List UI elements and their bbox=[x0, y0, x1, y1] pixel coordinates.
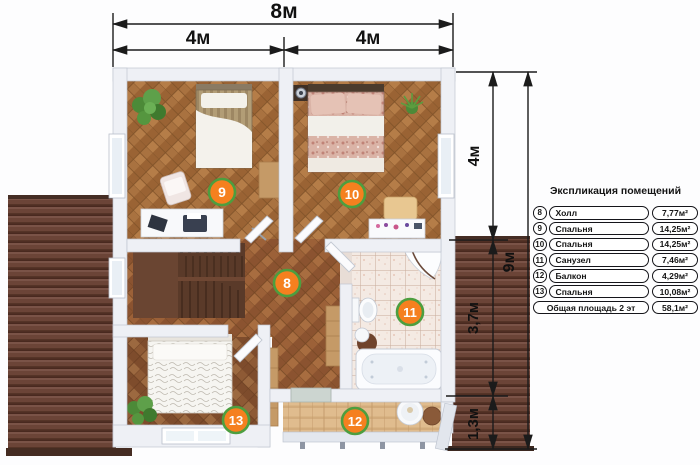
legend-room-name: Спальня bbox=[549, 222, 650, 236]
room-legend: Экспликация помещений 8 Холл 7,77м² 9 Сп… bbox=[533, 185, 698, 317]
svg-text:8: 8 bbox=[283, 275, 291, 291]
legend-title: Экспликация помещений bbox=[533, 185, 698, 197]
legend-row: 8 Холл 7,77м² bbox=[533, 206, 698, 220]
dim-right-bottom: 1,3м bbox=[465, 408, 482, 440]
legend-total-label: Общая площадь 2 эт bbox=[533, 301, 649, 315]
roof-right bbox=[446, 236, 534, 451]
legend-room-number: 10 bbox=[533, 238, 547, 252]
legend-room-number: 12 bbox=[533, 269, 547, 283]
dim-top-total: 8м bbox=[270, 0, 297, 23]
badge-room-10: 10 bbox=[339, 181, 365, 207]
badge-room-13: 13 bbox=[223, 407, 249, 433]
double-bed-icon bbox=[308, 84, 384, 172]
legend-row: 10 Спальня 14,25м² bbox=[533, 238, 698, 252]
legend-room-name: Спальня bbox=[549, 285, 650, 299]
legend-row: 9 Спальня 14,25м² bbox=[533, 222, 698, 236]
legend-room-name: Балкон bbox=[549, 269, 650, 283]
dim-top-right: 4м bbox=[356, 28, 381, 49]
floor-plan-page: 9 10 8 11 12 13 bbox=[0, 0, 700, 465]
legend-room-name: Санузел bbox=[549, 253, 650, 267]
bed-13-icon bbox=[148, 334, 232, 413]
balcony-chair-icon bbox=[423, 407, 441, 425]
legend-room-area: 4,29м² bbox=[652, 269, 698, 283]
bidet-icon bbox=[355, 328, 369, 342]
staircase bbox=[133, 243, 245, 318]
legend-room-name: Спальня bbox=[549, 238, 650, 252]
window-bedroom9 bbox=[109, 134, 125, 198]
svg-text:13: 13 bbox=[229, 413, 243, 428]
legend-row: 13 Спальня 10,08м² bbox=[533, 285, 698, 299]
legend-room-area: 10,08м² bbox=[652, 285, 698, 299]
legend-room-number: 8 bbox=[533, 206, 547, 220]
dim-right-top: 4м bbox=[466, 146, 483, 167]
legend-room-area: 7,77м² bbox=[652, 206, 698, 220]
balcony-door-sill bbox=[291, 388, 331, 402]
dim-right-total: 9м bbox=[501, 252, 518, 273]
legend-room-area: 14,25м² bbox=[652, 238, 698, 252]
desk-icon bbox=[141, 209, 223, 237]
legend-room-name: Холл bbox=[549, 206, 650, 220]
badge-room-12: 12 bbox=[342, 408, 368, 434]
legend-row: 11 Санузел 7,46м² bbox=[533, 253, 698, 267]
window-bedroom10 bbox=[438, 134, 454, 198]
badge-room-11: 11 bbox=[397, 299, 423, 325]
svg-text:10: 10 bbox=[345, 187, 359, 202]
bed-icon bbox=[196, 84, 252, 168]
dresser-10-icon bbox=[369, 219, 425, 238]
toilet-icon bbox=[352, 298, 377, 322]
badge-room-8: 8 bbox=[274, 270, 300, 296]
legend-room-number: 11 bbox=[533, 253, 547, 267]
dim-right-mid: 3,7м bbox=[465, 302, 482, 334]
window-bedroom13 bbox=[162, 428, 230, 444]
legend-room-number: 9 bbox=[533, 222, 547, 236]
dim-top-left: 4м bbox=[186, 28, 211, 49]
svg-text:9: 9 bbox=[218, 184, 226, 200]
window-hall bbox=[109, 258, 125, 298]
svg-text:12: 12 bbox=[348, 414, 362, 429]
legend-total-row: Общая площадь 2 эт 58,1м² bbox=[533, 301, 698, 315]
badge-room-9: 9 bbox=[209, 179, 235, 205]
bathtub-icon bbox=[356, 349, 442, 390]
svg-text:11: 11 bbox=[403, 305, 417, 320]
legend-row: 12 Балкон 4,29м² bbox=[533, 269, 698, 283]
dresser-icon bbox=[259, 162, 279, 198]
legend-room-number: 13 bbox=[533, 285, 547, 299]
ottoman-icon bbox=[384, 197, 417, 220]
legend-room-area: 14,25м² bbox=[652, 222, 698, 236]
legend-room-area: 7,46м² bbox=[652, 253, 698, 267]
legend-total-area: 58,1м² bbox=[652, 301, 698, 315]
